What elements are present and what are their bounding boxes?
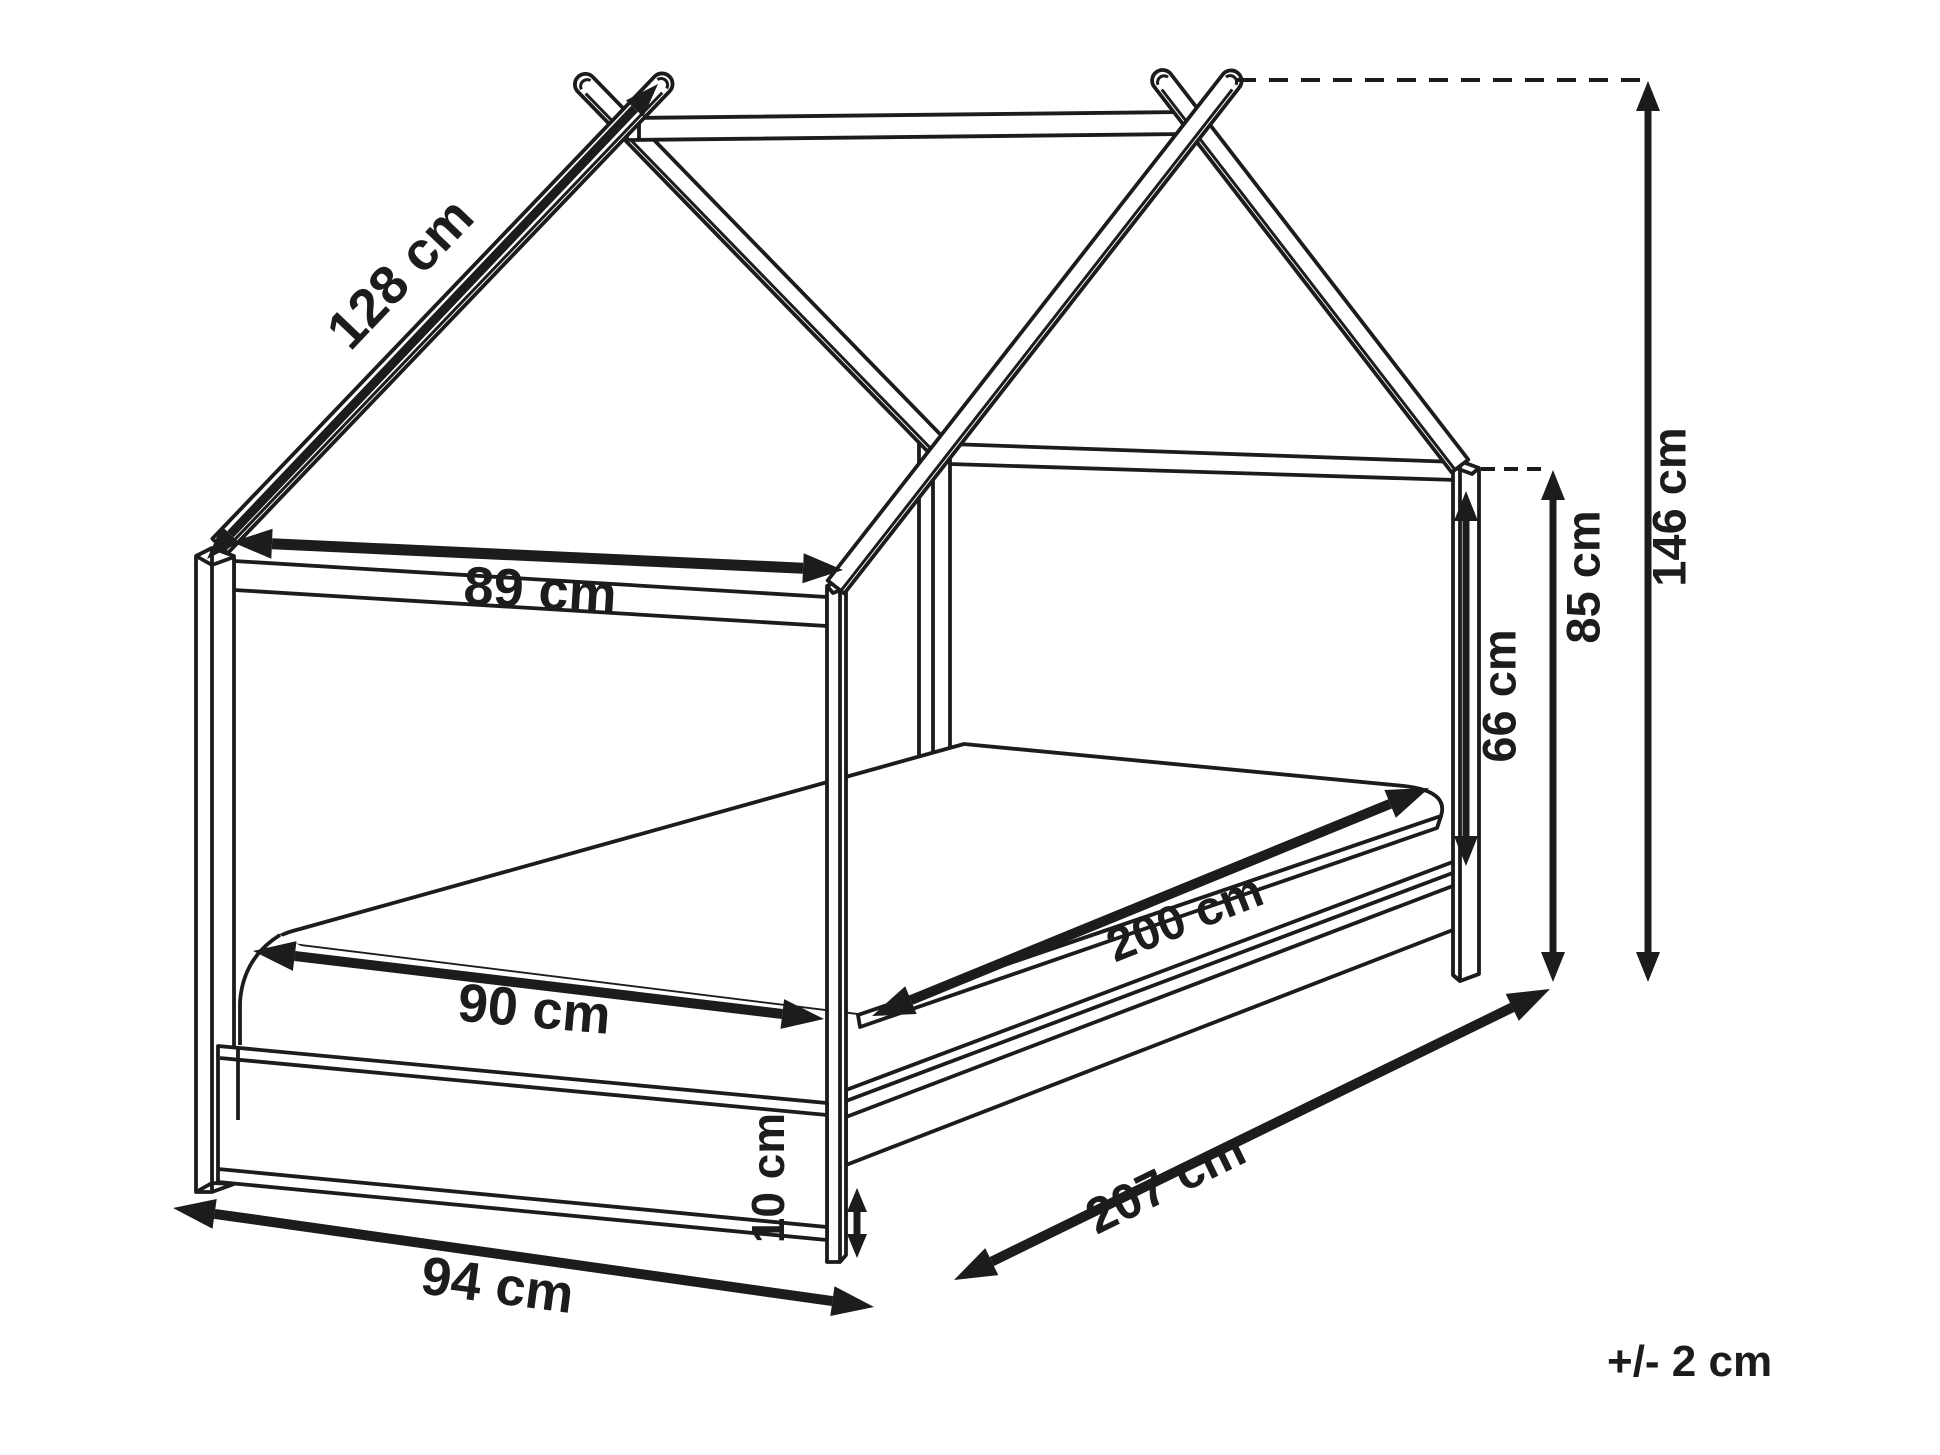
svg-text:+/- 2 cm: +/- 2 cm <box>1607 1337 1772 1386</box>
svg-text:146 cm: 146 cm <box>1642 427 1695 586</box>
svg-text:10 cm: 10 cm <box>742 1113 794 1243</box>
svg-text:66 cm: 66 cm <box>1472 629 1525 762</box>
svg-text:89 cm: 89 cm <box>462 556 619 625</box>
svg-text:85 cm: 85 cm <box>1556 510 1609 643</box>
